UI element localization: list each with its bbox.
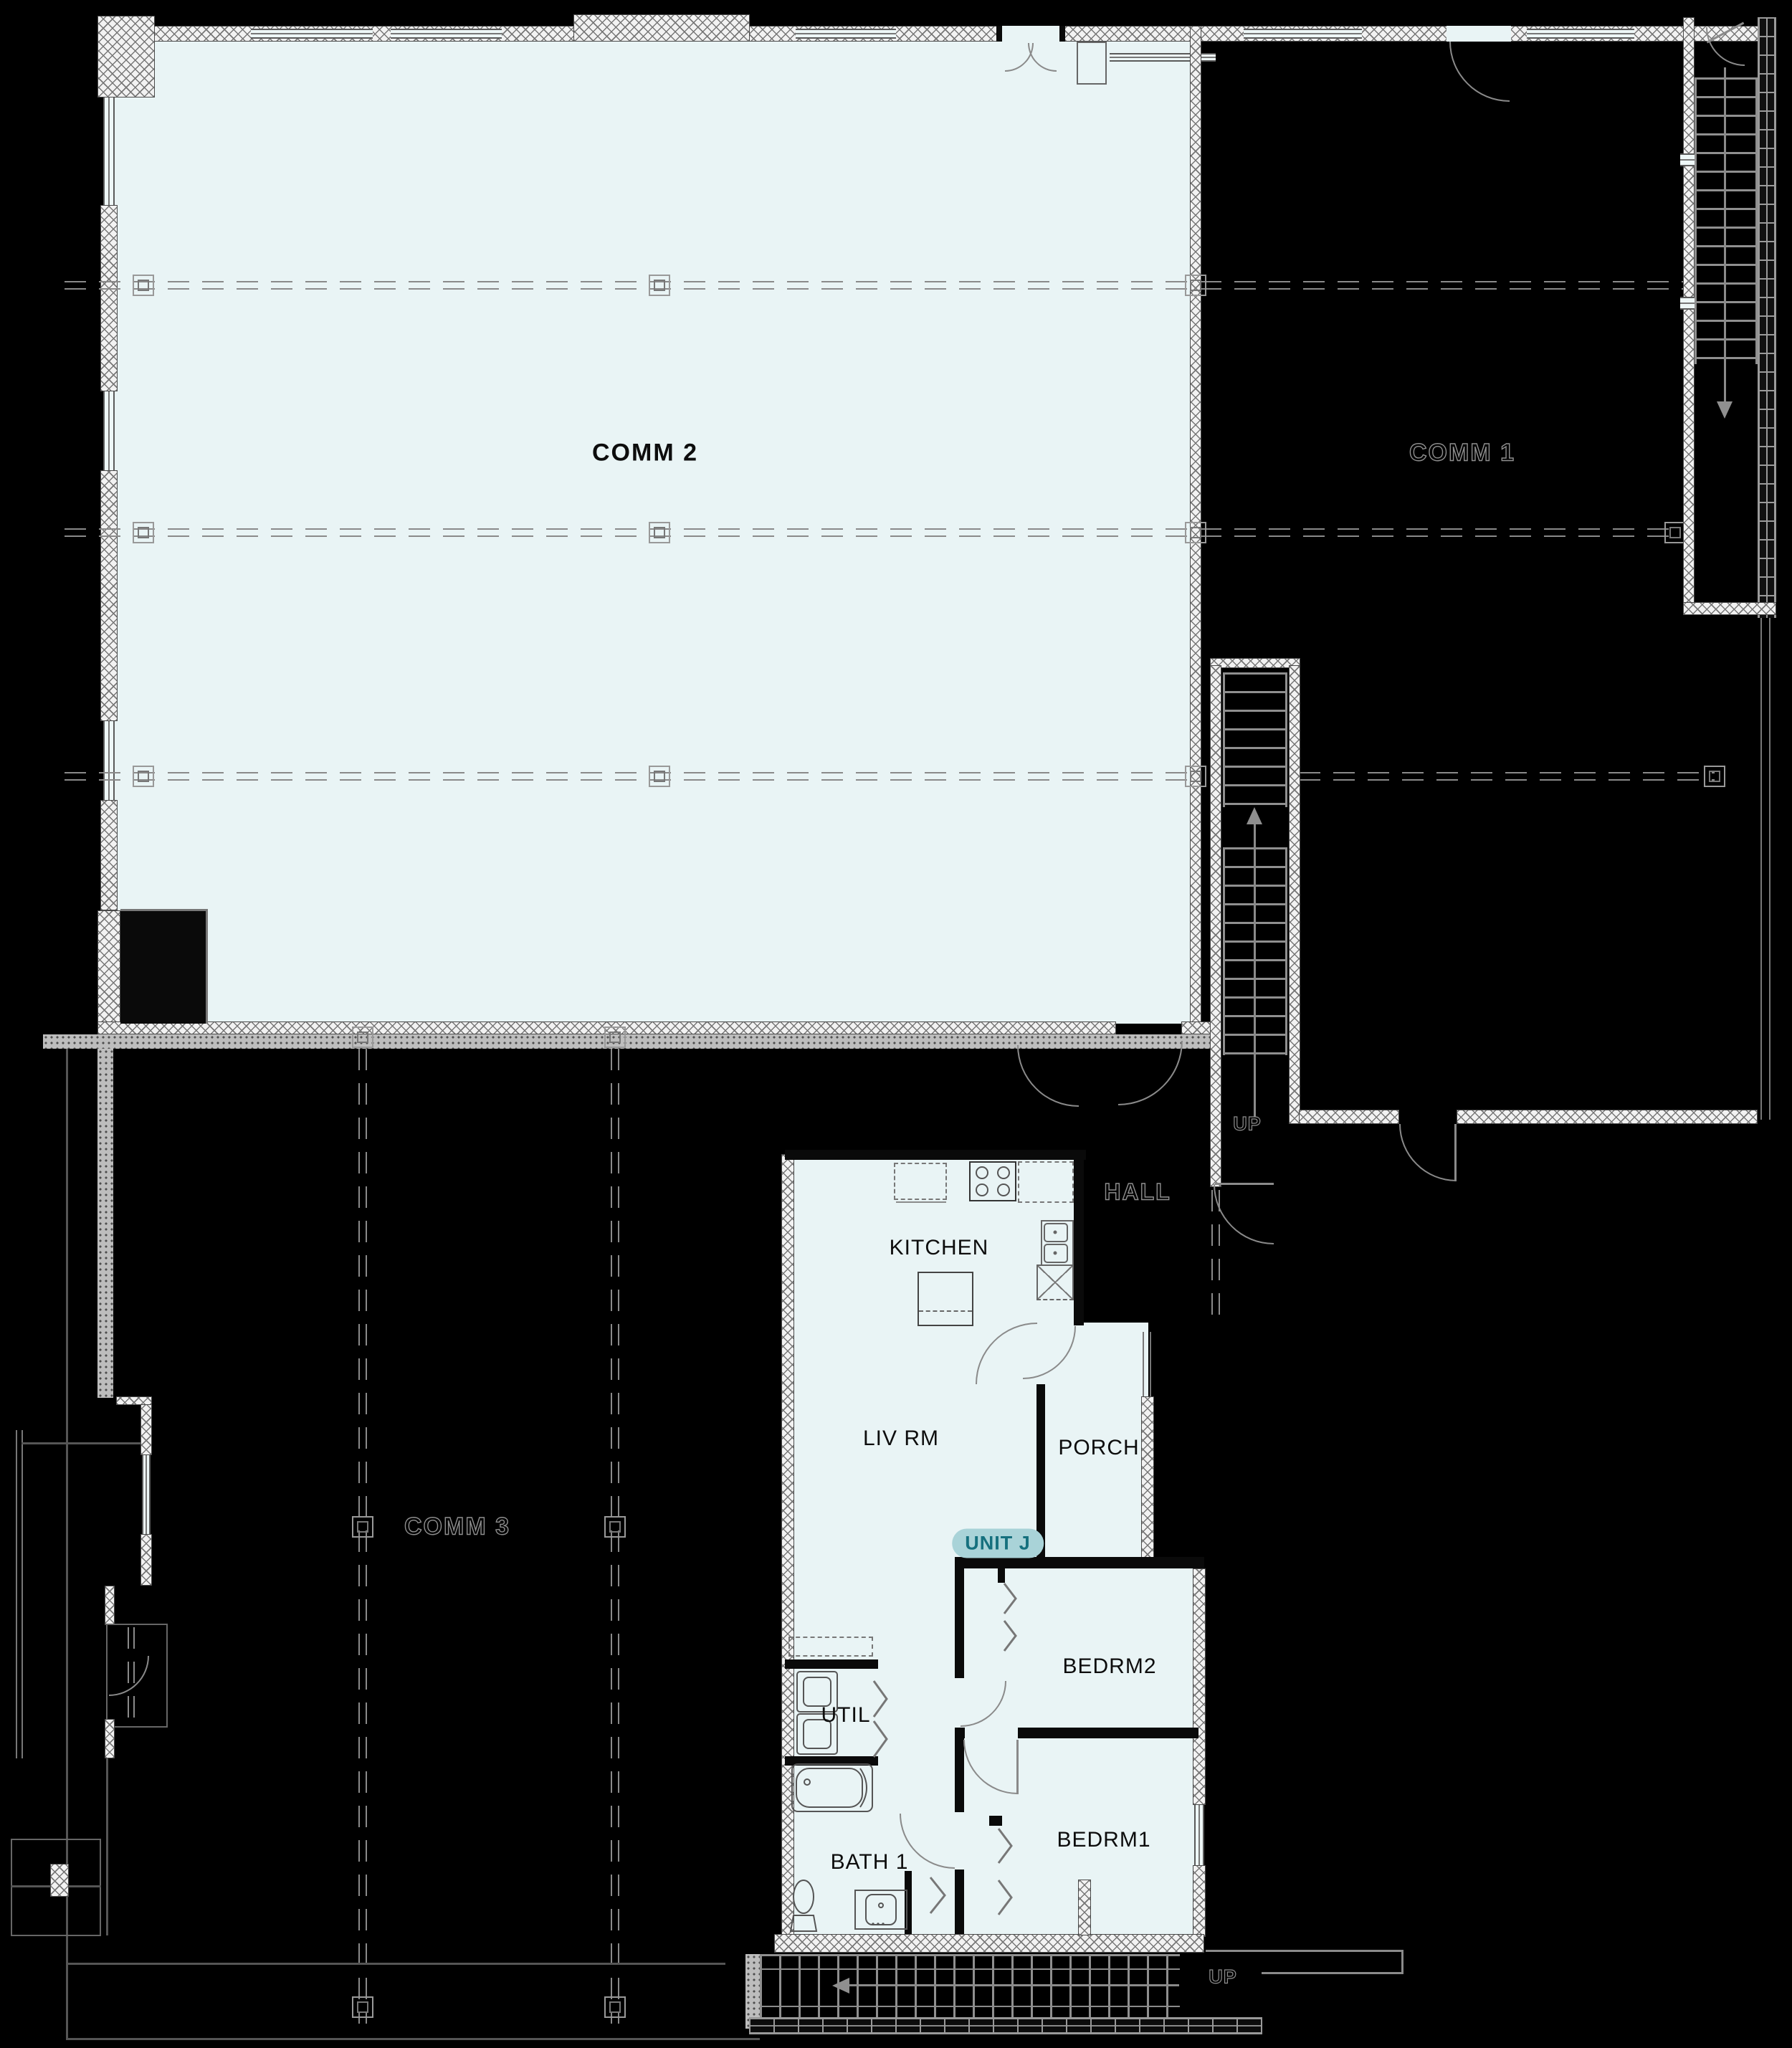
foundation-band-left — [97, 1049, 113, 1398]
column — [133, 522, 154, 543]
window — [103, 97, 115, 205]
window — [1244, 29, 1362, 39]
corner-pilaster-nw — [97, 16, 155, 97]
toilet-icon — [788, 1878, 819, 1934]
column — [1185, 766, 1206, 787]
unit-badge: UNIT J — [952, 1529, 1044, 1558]
pantry-closet — [1036, 1264, 1074, 1300]
stair-arrow-left-icon — [832, 1978, 849, 1994]
column — [649, 275, 670, 296]
column — [133, 766, 154, 787]
stairs-bottom-treads — [760, 1954, 1180, 2027]
beam-line — [65, 528, 1676, 537]
window — [391, 29, 502, 39]
room-label-porch: PORCH — [1058, 1436, 1139, 1460]
stair-rail-line — [760, 1968, 1180, 1970]
util-north-wall — [785, 1659, 878, 1669]
column — [649, 522, 670, 543]
column — [352, 1027, 373, 1048]
comm2-corner-notch — [120, 909, 208, 1024]
door-swing-arc — [1424, 0, 1595, 127]
stairwell-mid-top-wall — [1210, 658, 1300, 668]
left-exterior-wall — [97, 910, 120, 1024]
room-label-comm2: COMM 2 — [592, 439, 698, 467]
wall-stub — [116, 1396, 152, 1405]
room-label-comm1: COMM 1 — [1409, 439, 1515, 467]
comm2-south-wall — [1181, 1021, 1213, 1034]
util-cabinet — [788, 1637, 873, 1657]
kitchen-east-wall — [1074, 1150, 1084, 1325]
bifold-door — [928, 1875, 947, 1915]
window — [103, 721, 115, 800]
site-line — [22, 1442, 140, 1444]
stove-icon — [969, 1161, 1016, 1201]
column — [352, 1516, 373, 1538]
stair-label-up-bottom: UP — [1209, 1966, 1237, 1989]
stairs-up-treads — [1223, 672, 1287, 807]
kitchen-island — [918, 1272, 973, 1326]
room-label-comm3: COMM 3 — [404, 1513, 510, 1541]
wall-opening-mark — [1680, 153, 1695, 166]
stairwell-mid-west-wall — [1210, 665, 1221, 1187]
kitchen-sink-icon — [1041, 1220, 1074, 1266]
bifold-door — [996, 1878, 1014, 1917]
beam-line — [65, 772, 1201, 781]
room-label-living: LIV RM — [863, 1427, 939, 1451]
stairwell-ne-west-wall — [1683, 17, 1695, 615]
door-swing-arc — [1376, 1043, 1538, 1205]
column — [133, 275, 154, 296]
stair-arrow-down-icon — [1717, 401, 1733, 419]
porch-east-wall — [1141, 1396, 1154, 1568]
window — [251, 29, 373, 39]
bedrm1-window — [1194, 1805, 1204, 1865]
handrail-line — [1262, 1972, 1403, 1974]
column — [604, 1516, 626, 1538]
comm1-south-wall — [1299, 1110, 1399, 1124]
room-label-bath1: BATH 1 — [831, 1850, 909, 1875]
handrail-line — [1206, 1950, 1403, 1952]
left-exterior-wall — [100, 470, 118, 721]
closet-jamb — [998, 1568, 1005, 1583]
column — [604, 1996, 626, 2018]
bifold-door — [872, 1679, 889, 1719]
unit-south-wall — [774, 1934, 1204, 1953]
stair-label-up-mid: UP — [1233, 1113, 1262, 1135]
stairwell-ne-bottom-wall — [1683, 602, 1776, 615]
kitchen-counter — [894, 1163, 947, 1200]
beam-line — [65, 281, 1684, 290]
window — [142, 1455, 151, 1534]
wall-pier — [50, 1864, 69, 1897]
wall-pier — [140, 1534, 152, 1586]
room-label-util: UTIL — [821, 1703, 870, 1728]
kitchen-counter — [1018, 1161, 1074, 1203]
wall-pier — [140, 1398, 152, 1455]
left-exterior-wall — [100, 205, 118, 391]
room-label-hall: HALL — [1104, 1179, 1171, 1206]
column — [1185, 275, 1206, 296]
stair-arrow-up-icon — [1247, 807, 1262, 824]
bifold-door — [1002, 1581, 1018, 1616]
wall-opening-mark — [1680, 297, 1695, 310]
stairs-down-treads — [1695, 77, 1758, 364]
floor-plan: COMM 2 COMM 1 COMM 3 HALL UP UP KITCHEN … — [0, 0, 1792, 2048]
site-line — [66, 1963, 725, 1965]
stair-rail-line — [760, 2006, 1180, 2007]
column — [649, 766, 670, 787]
wall-pier — [1078, 1880, 1091, 1935]
hall-bath-wall — [955, 1870, 964, 1938]
site-edge — [16, 1430, 23, 1758]
unit-east-wall — [1193, 1865, 1206, 1937]
bathtub-icon — [791, 1763, 873, 1812]
bifold-door — [872, 1719, 889, 1759]
top-wall-step-block — [573, 14, 750, 42]
room-label-bedrm1: BEDRM1 — [1057, 1828, 1150, 1852]
landing-tiles — [749, 2017, 1262, 2034]
handrail-line — [1401, 1950, 1403, 1974]
island-overhang-line — [919, 1310, 972, 1312]
stair-direction-line — [849, 1984, 1179, 1986]
east-wall-lower — [1760, 618, 1770, 1120]
column — [1185, 522, 1206, 543]
stairwell-mid-east-wall — [1289, 665, 1300, 1124]
unit-west-wall — [781, 1154, 794, 1940]
porch-east-window — [1143, 1332, 1151, 1396]
left-exterior-wall — [100, 800, 118, 910]
site-line — [106, 1758, 108, 1935]
wall-pier — [105, 1719, 115, 1758]
east-masonry-wall — [1758, 17, 1776, 618]
window — [103, 391, 115, 470]
counter-front-line — [896, 1201, 946, 1203]
vanity-sink-icon — [854, 1890, 907, 1930]
beam-line — [1299, 772, 1715, 781]
bifold-door — [996, 1826, 1014, 1865]
room-label-bedrm2: BEDRM2 — [1062, 1654, 1156, 1679]
window — [796, 29, 896, 39]
stair-direction-line — [1254, 823, 1256, 1117]
kitchen-north-wall — [785, 1150, 1086, 1160]
unit-east-wall — [1193, 1568, 1206, 1805]
column — [352, 1996, 373, 2018]
column — [604, 1027, 626, 1048]
column — [1704, 766, 1725, 787]
site-line — [66, 2038, 760, 2040]
bifold-door — [1002, 1619, 1018, 1653]
bedroom-wing-north-wall — [955, 1557, 1204, 1568]
stair-direction-line — [1724, 67, 1726, 404]
room-label-kitchen: KITCHEN — [890, 1236, 989, 1260]
